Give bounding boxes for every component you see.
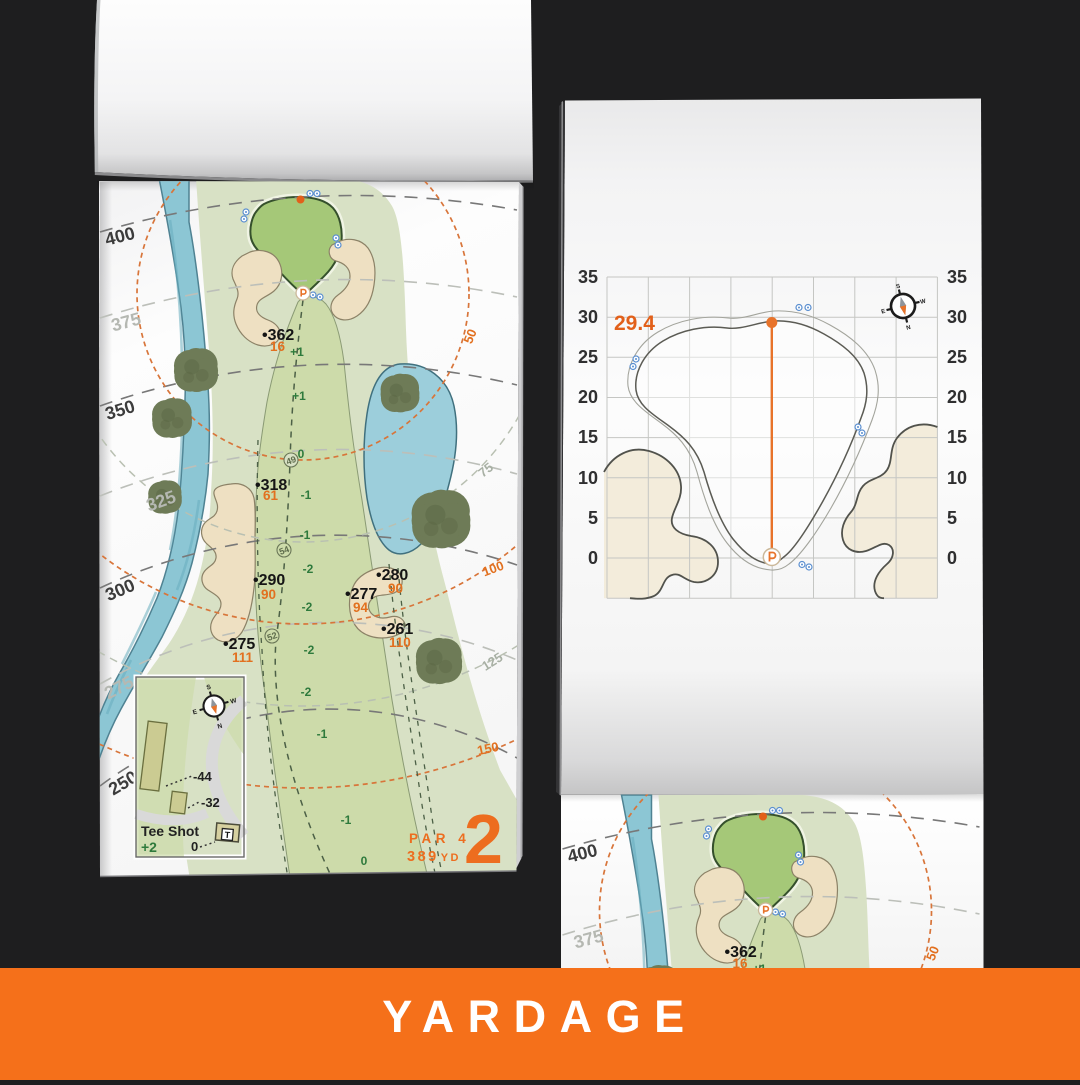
svg-text:-2: -2 xyxy=(301,685,312,699)
svg-text:5: 5 xyxy=(588,508,598,528)
svg-text:Tee Shot: Tee Shot xyxy=(141,823,199,839)
svg-text:0: 0 xyxy=(361,854,368,868)
svg-text:0: 0 xyxy=(947,548,957,568)
svg-text:-32: -32 xyxy=(201,795,220,810)
svg-text:20: 20 xyxy=(947,387,967,407)
svg-text:16: 16 xyxy=(270,339,286,354)
svg-text:29.4: 29.4 xyxy=(614,312,655,335)
svg-text:PAR 4: PAR 4 xyxy=(409,831,470,846)
svg-text:2: 2 xyxy=(464,800,501,878)
svg-text:-2: -2 xyxy=(304,643,315,657)
svg-text:0: 0 xyxy=(588,548,598,568)
svg-text:+2: +2 xyxy=(141,839,157,855)
svg-text:YARDAGE: YARDAGE xyxy=(382,991,697,1042)
svg-text:5: 5 xyxy=(947,508,957,528)
svg-text:10: 10 xyxy=(947,468,967,488)
svg-text:20: 20 xyxy=(578,387,598,407)
svg-text:0: 0 xyxy=(191,839,198,854)
svg-text:15: 15 xyxy=(578,427,598,447)
svg-text:+1: +1 xyxy=(292,389,306,403)
svg-text:90: 90 xyxy=(388,581,403,596)
svg-text:110: 110 xyxy=(389,635,411,650)
svg-text:-1: -1 xyxy=(341,813,352,827)
svg-text:-1: -1 xyxy=(317,727,328,741)
svg-text:-1: -1 xyxy=(300,528,311,542)
svg-text:30: 30 xyxy=(947,307,967,327)
svg-text:25: 25 xyxy=(578,347,598,367)
svg-text:111: 111 xyxy=(232,650,254,665)
svg-text:-1: -1 xyxy=(301,488,312,502)
svg-text:30: 30 xyxy=(578,307,598,327)
svg-text:61: 61 xyxy=(263,488,279,503)
svg-text:35: 35 xyxy=(947,267,967,287)
svg-text:15: 15 xyxy=(947,427,967,447)
svg-text:389YD: 389YD xyxy=(407,849,461,865)
svg-text:+1: +1 xyxy=(290,345,304,359)
svg-text:-2: -2 xyxy=(303,562,314,576)
svg-text:-44: -44 xyxy=(193,769,213,784)
svg-text:90: 90 xyxy=(261,587,276,602)
svg-text:10: 10 xyxy=(578,468,598,488)
svg-text:94: 94 xyxy=(353,600,369,615)
svg-text:-2: -2 xyxy=(302,600,313,614)
svg-text:35: 35 xyxy=(578,267,598,287)
svg-text:25: 25 xyxy=(947,347,967,367)
svg-text:0: 0 xyxy=(298,447,305,461)
